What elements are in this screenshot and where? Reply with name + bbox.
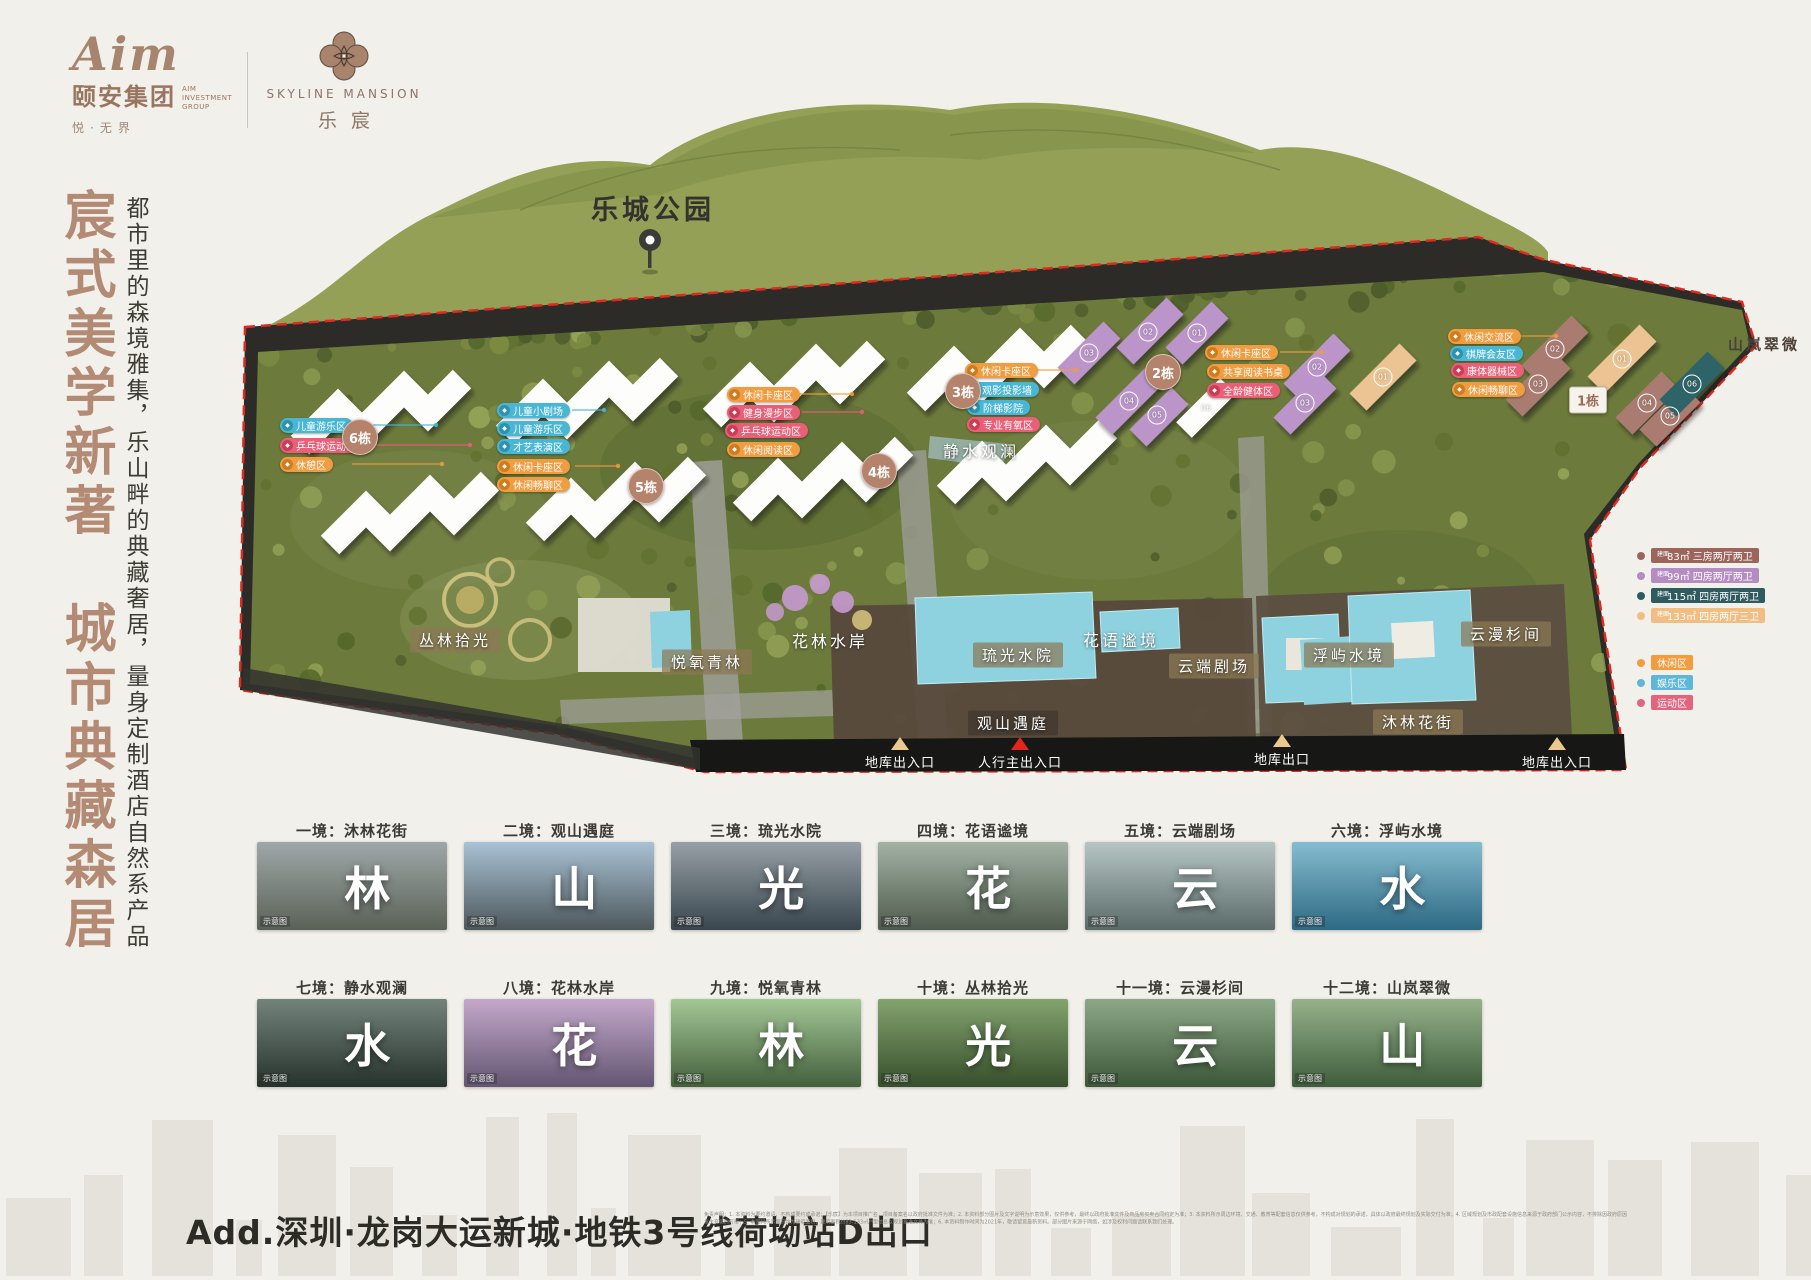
brand-logo: Aim 颐安集团 AIM INVESTMENT GROUP 悦·无界 <box>72 34 246 136</box>
scene-card: 八境：花林水岸花示意图 <box>464 977 654 1087</box>
legend-area: 115㎡ <box>1667 588 1696 603</box>
card-watermark: 示意图 <box>260 1073 290 1084</box>
card-image: 光示意图 <box>671 842 861 930</box>
scene-card: 九境：悦氧青林林示意图 <box>671 977 861 1087</box>
card-big-character: 水 <box>1379 853 1425 919</box>
card-big-character: 光 <box>758 853 804 919</box>
scene-card: 七境：静水观澜水示意图 <box>257 977 447 1087</box>
legend-unit-row: 建面115㎡四房两厅两卫 <box>1637 588 1765 603</box>
card-title: 九境：悦氧青林 <box>671 977 861 994</box>
brand-script-logo: Aim <box>72 34 246 75</box>
card-title: 一境：沐林花街 <box>257 820 447 837</box>
card-big-character: 云 <box>1172 853 1218 919</box>
project-logo: SKYLINE MANSION 乐宸 <box>266 30 422 133</box>
card-watermark: 示意图 <box>1295 916 1325 927</box>
card-big-character: 云 <box>1172 1010 1218 1076</box>
card-big-character: 山 <box>1379 1010 1425 1076</box>
vertical-subline: 都市里的森境雅集，乐山畔的典藏奢居，量身定制酒店自然系产品 <box>118 196 152 950</box>
scene-cards: 一境：沐林花街林示意图二境：观山遇庭山示意图三境：琉光水院光示意图四境：花语谧境… <box>257 820 1482 1087</box>
masterplan-graphic <box>0 0 1811 1280</box>
project-name-cn: 乐宸 <box>266 106 422 133</box>
card-watermark: 示意图 <box>260 916 290 927</box>
poster-page: Aim 颐安集团 AIM INVESTMENT GROUP 悦·无界 SKYLI… <box>0 0 1811 1280</box>
card-image: 水示意图 <box>257 999 447 1087</box>
legend-unit-row: 建面133㎡四房两厅三卫 <box>1637 608 1765 623</box>
card-big-character: 山 <box>551 853 597 919</box>
brand-subtitle: AIM INVESTMENT GROUP <box>182 85 246 112</box>
legend-zone-pill: 娱乐区 <box>1651 675 1693 690</box>
card-big-character: 光 <box>965 1010 1011 1076</box>
card-title: 六境：浮屿水境 <box>1292 820 1482 837</box>
card-image: 花示意图 <box>464 999 654 1087</box>
legend-zone-row: 休闲区 <box>1637 655 1765 670</box>
scene-card: 三境：琉光水院光示意图 <box>671 820 861 930</box>
card-watermark: 示意图 <box>1088 916 1118 927</box>
card-big-character: 林 <box>758 1010 804 1076</box>
legend-unit-row: 建面83㎡三房两厅两卫 <box>1637 548 1765 563</box>
card-image: 林示意图 <box>671 999 861 1087</box>
card-image: 山示意图 <box>464 842 654 930</box>
legend-area-prefix: 建面 <box>1657 592 1664 598</box>
card-watermark: 示意图 <box>467 916 497 927</box>
legend-unit-row: 建面99㎡四房两厅两卫 <box>1637 568 1765 583</box>
scene-card: 二境：观山遇庭山示意图 <box>464 820 654 930</box>
legend-unit-pill: 建面99㎡四房两厅两卫 <box>1651 568 1759 583</box>
legend-zone-pill: 运动区 <box>1651 695 1693 710</box>
legend-area-prefix: 建面 <box>1657 552 1664 558</box>
card-title: 八境：花林水岸 <box>464 977 654 994</box>
park-label: 乐城公园 <box>591 188 715 227</box>
legend-zone-row: 娱乐区 <box>1637 675 1765 690</box>
legend-spacer <box>1637 628 1765 650</box>
legend-dot <box>1637 659 1645 667</box>
card-image: 林示意图 <box>257 842 447 930</box>
card-watermark: 示意图 <box>881 1073 911 1084</box>
legend-zone-pill: 休闲区 <box>1651 655 1693 670</box>
legend-unit-pill: 建面115㎡四房两厅两卫 <box>1651 588 1765 603</box>
card-image: 光示意图 <box>878 999 1068 1087</box>
card-image: 山示意图 <box>1292 999 1482 1087</box>
legend-unit-pill: 建面133㎡四房两厅三卫 <box>1651 608 1765 623</box>
scene-card: 十一境：云漫杉间云示意图 <box>1085 977 1275 1087</box>
card-image: 花示意图 <box>878 842 1068 930</box>
legend-desc: 三房两厅两卫 <box>1693 548 1753 563</box>
card-watermark: 示意图 <box>467 1073 497 1084</box>
card-image: 云示意图 <box>1085 842 1275 930</box>
card-title: 十境：丛林拾光 <box>878 977 1068 994</box>
card-title: 五境：云端剧场 <box>1085 820 1275 837</box>
legend-area: 99㎡ <box>1667 568 1690 583</box>
scene-card: 十二境：山岚翠微山示意图 <box>1292 977 1482 1087</box>
legend-dot <box>1637 612 1645 620</box>
card-big-character: 水 <box>344 1010 390 1076</box>
card-big-character: 花 <box>551 1010 597 1076</box>
site-plan <box>240 237 1756 772</box>
card-image: 云示意图 <box>1085 999 1275 1087</box>
card-watermark: 示意图 <box>674 1073 704 1084</box>
card-big-character: 花 <box>965 853 1011 919</box>
legend-desc: 四房两厅三卫 <box>1699 608 1759 623</box>
legend-area-prefix: 建面 <box>1657 572 1664 578</box>
scene-card: 一境：沐林花街林示意图 <box>257 820 447 930</box>
brand-name: 颐安集团 <box>72 77 176 112</box>
clover-flower-icon <box>318 30 370 82</box>
legend-area-prefix: 建面 <box>1657 612 1664 618</box>
card-big-character: 林 <box>344 853 390 919</box>
logo-divider <box>247 52 248 128</box>
legend-dot <box>1637 552 1645 560</box>
card-watermark: 示意图 <box>1295 1073 1325 1084</box>
card-title: 三境：琉光水院 <box>671 820 861 837</box>
scene-card: 四境：花语谧境花示意图 <box>878 820 1068 930</box>
card-watermark: 示意图 <box>674 916 704 927</box>
card-watermark: 示意图 <box>1088 1073 1118 1084</box>
project-name-en: SKYLINE MANSION <box>266 87 422 101</box>
vertical-headline: 宸式美学新著 城市典藏森居 <box>48 188 123 955</box>
legend-desc: 四房两厅两卫 <box>1693 568 1753 583</box>
legend-zone-row: 运动区 <box>1637 695 1765 710</box>
legend-dot <box>1637 572 1645 580</box>
card-title: 二境：观山遇庭 <box>464 820 654 837</box>
card-title: 七境：静水观澜 <box>257 977 447 994</box>
brand-slogan: 悦·无界 <box>72 119 246 136</box>
card-title: 十二境：山岚翠微 <box>1292 977 1482 994</box>
legend-area: 83㎡ <box>1667 548 1690 563</box>
legend-desc: 四房两厅两卫 <box>1699 588 1759 603</box>
card-image: 水示意图 <box>1292 842 1482 930</box>
card-title: 十一境：云漫杉间 <box>1085 977 1275 994</box>
legend-dot <box>1637 679 1645 687</box>
scene-card: 五境：云端剧场云示意图 <box>1085 820 1275 930</box>
legend-dot <box>1637 699 1645 707</box>
card-watermark: 示意图 <box>881 916 911 927</box>
legend-unit-pill: 建面83㎡三房两厅两卫 <box>1651 548 1759 563</box>
scene-card: 十境：丛林拾光光示意图 <box>878 977 1068 1087</box>
legend: 建面83㎡三房两厅两卫建面99㎡四房两厅两卫建面115㎡四房两厅两卫建面133㎡… <box>1637 548 1765 710</box>
disclaimer-text: 免责声明：1. 本资料为要约邀请，不构成要约或承诺；【乐宸】为本项目推广名，项目… <box>704 1211 1628 1226</box>
scene-card: 六境：浮屿水境水示意图 <box>1292 820 1482 930</box>
legend-area: 133㎡ <box>1667 608 1696 623</box>
card-title: 四境：花语谧境 <box>878 820 1068 837</box>
legend-dot <box>1637 592 1645 600</box>
